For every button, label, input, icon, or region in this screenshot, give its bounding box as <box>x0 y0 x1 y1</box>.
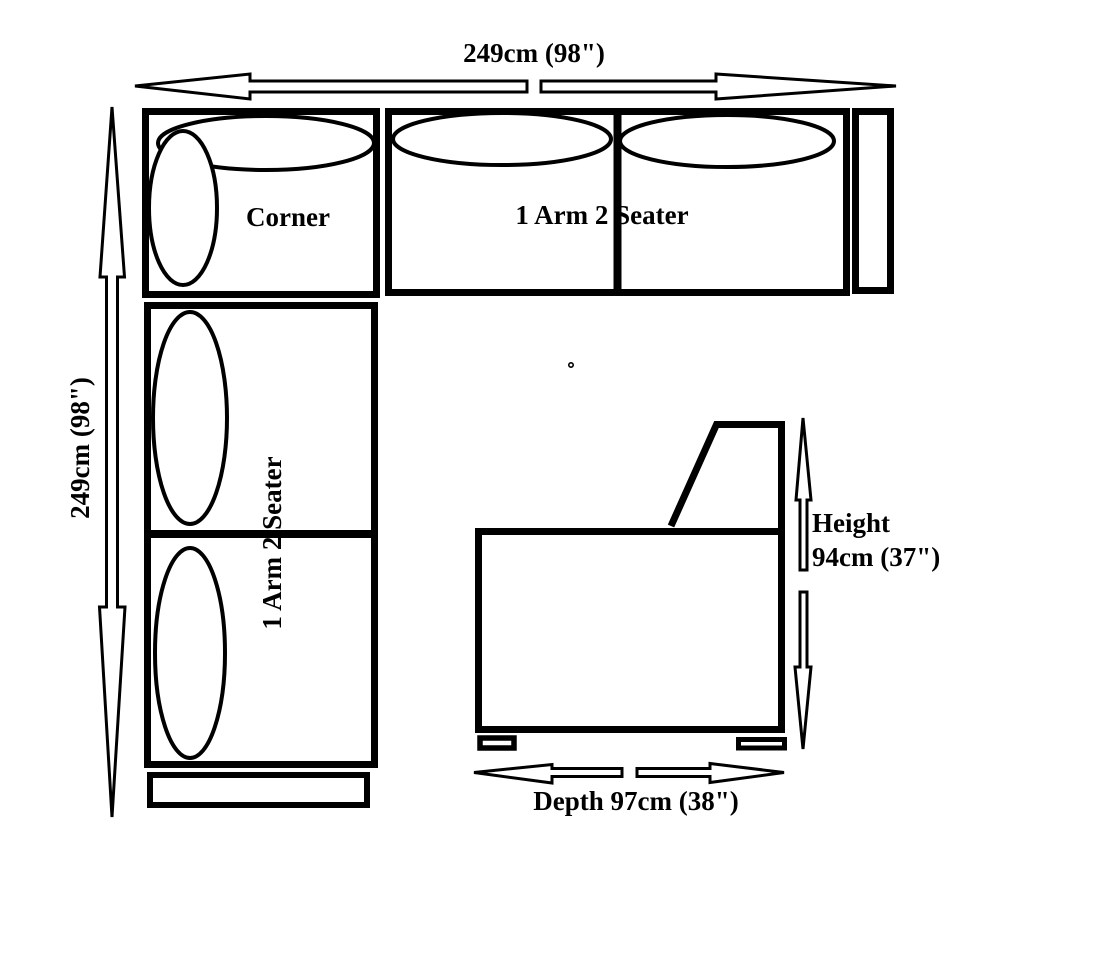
depth-dimension-label: Depth 97cm (38") <box>486 784 786 818</box>
left-seat-cushion-lower-ellipse <box>155 548 225 758</box>
side-view-foot-right <box>739 740 785 749</box>
top-width-dimension-label: 249cm (98") <box>384 36 684 70</box>
left-depth-arrow <box>100 107 126 817</box>
depth-arrow-right <box>637 764 784 783</box>
corner-section-label: Corner <box>138 200 438 234</box>
height-dimension-word: Height <box>812 506 940 540</box>
top-width-arrow-right <box>541 74 896 99</box>
top-width-arrow-left <box>135 74 527 99</box>
height-arrow-up <box>796 418 811 570</box>
top-seat-cushion-left-ellipse <box>393 113 611 165</box>
height-arrow-down <box>795 592 811 749</box>
left-seat-cushion-upper-ellipse <box>153 312 227 524</box>
left-depth-dimension-label: 249cm (98") <box>63 298 97 598</box>
side-view-body-outline <box>479 532 782 730</box>
bottom-arm-outline <box>150 775 367 805</box>
side-view-foot-left <box>480 738 514 748</box>
top-seat-cushion-right-ellipse <box>620 115 834 167</box>
sofa-dimension-diagram: 249cm (98") 249cm (98") Corner 1 Arm 2 S… <box>0 0 1104 956</box>
side-view-backrest-outline <box>671 425 782 531</box>
right-arm-outline <box>856 112 891 291</box>
depth-arrow-left <box>474 765 622 784</box>
left-section-label: 1 Arm 2 Seater <box>255 393 289 693</box>
stray-dot <box>569 363 573 367</box>
height-dimension-label: Height 94cm (37") <box>812 506 940 574</box>
height-dimension-value: 94cm (37") <box>812 540 940 574</box>
top-section-label: 1 Arm 2 Seater <box>452 198 752 232</box>
